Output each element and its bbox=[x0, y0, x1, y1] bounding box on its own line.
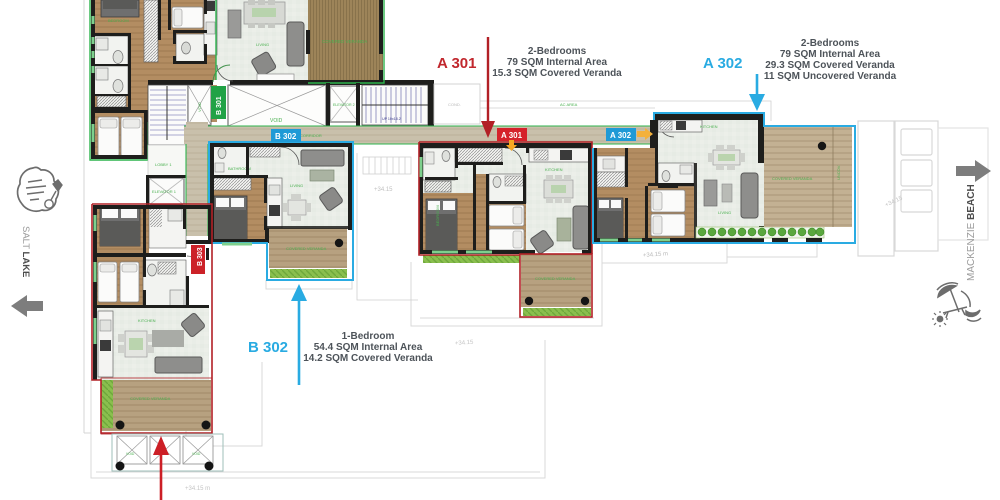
svg-text:LIVING: LIVING bbox=[718, 210, 731, 215]
svg-text:KITCHEN: KITCHEN bbox=[545, 167, 563, 172]
svg-text:SALT LAKE: SALT LAKE bbox=[20, 226, 31, 277]
svg-text:A 301: A 301 bbox=[437, 55, 476, 72]
svg-text:VOID: VOID bbox=[270, 118, 283, 124]
svg-text:B 302: B 302 bbox=[248, 339, 288, 356]
svg-text:UNCOV.: UNCOV. bbox=[836, 165, 841, 180]
svg-text:VOID: VOID bbox=[126, 452, 135, 456]
svg-text:AC AREA: AC AREA bbox=[560, 102, 578, 107]
svg-text:15.3 SQM Covered Veranda: 15.3 SQM Covered Veranda bbox=[492, 68, 622, 79]
svg-text:A 301: A 301 bbox=[501, 131, 523, 140]
svg-text:54.4 SQM Internal Area: 54.4 SQM Internal Area bbox=[314, 342, 423, 353]
svg-text:79 SQM Internal Area: 79 SQM Internal Area bbox=[780, 49, 881, 60]
svg-text:LIVING: LIVING bbox=[290, 183, 303, 188]
svg-text:KITCHEN: KITCHEN bbox=[700, 124, 718, 129]
svg-text:UP 10x18.2: UP 10x18.2 bbox=[382, 117, 401, 121]
svg-text:14.2 SQM Covered Veranda: 14.2 SQM Covered Veranda bbox=[303, 353, 433, 364]
svg-text:11 SQM Uncovered Veranda: 11 SQM Uncovered Veranda bbox=[764, 71, 897, 82]
svg-text:B 303: B 303 bbox=[197, 247, 204, 266]
svg-text:A 302: A 302 bbox=[703, 55, 742, 72]
svg-text:COVERED VERANDA: COVERED VERANDA bbox=[286, 246, 327, 251]
svg-text:79 SQM Internal Area: 79 SQM Internal Area bbox=[507, 57, 608, 68]
svg-text:+34.15 m: +34.15 m bbox=[185, 486, 210, 492]
svg-text:COVERED VERANDA: COVERED VERANDA bbox=[772, 176, 813, 181]
svg-text:A 302: A 302 bbox=[610, 131, 632, 140]
svg-text:VOID: VOID bbox=[192, 452, 201, 456]
svg-text:MACKENZIE BEACH: MACKENZIE BEACH bbox=[966, 184, 977, 281]
svg-text:COND.: COND. bbox=[448, 102, 461, 107]
svg-text:1-Bedroom: 1-Bedroom bbox=[342, 331, 395, 342]
svg-text:LOBBY 1: LOBBY 1 bbox=[155, 162, 172, 167]
svg-text:VOID: VOID bbox=[197, 102, 202, 112]
svg-text:COVERED VERANDA: COVERED VERANDA bbox=[535, 276, 576, 281]
svg-text:KITCHEN: KITCHEN bbox=[138, 318, 156, 323]
svg-text:ELEVATOR 2: ELEVATOR 2 bbox=[333, 103, 355, 107]
svg-text:BEDROOM: BEDROOM bbox=[108, 18, 129, 23]
svg-text:CORRIDOR: CORRIDOR bbox=[300, 133, 322, 138]
svg-text:29.3 SQM Covered Veranda: 29.3 SQM Covered Veranda bbox=[765, 60, 895, 71]
svg-text:B 301: B 301 bbox=[216, 96, 223, 115]
svg-text:COVERED VERANDA: COVERED VERANDA bbox=[322, 39, 367, 44]
svg-text:COVERED VERANDA: COVERED VERANDA bbox=[130, 396, 171, 401]
svg-text:2-Bedrooms: 2-Bedrooms bbox=[528, 46, 587, 57]
svg-text:2-Bedrooms: 2-Bedrooms bbox=[801, 38, 860, 49]
svg-text:BEDROOM: BEDROOM bbox=[435, 205, 440, 226]
svg-text:+34.15: +34.15 bbox=[374, 187, 393, 193]
svg-text:B 302: B 302 bbox=[275, 132, 297, 141]
svg-text:LIVING: LIVING bbox=[256, 42, 269, 47]
svg-text:ELEVATOR 1: ELEVATOR 1 bbox=[152, 189, 177, 194]
